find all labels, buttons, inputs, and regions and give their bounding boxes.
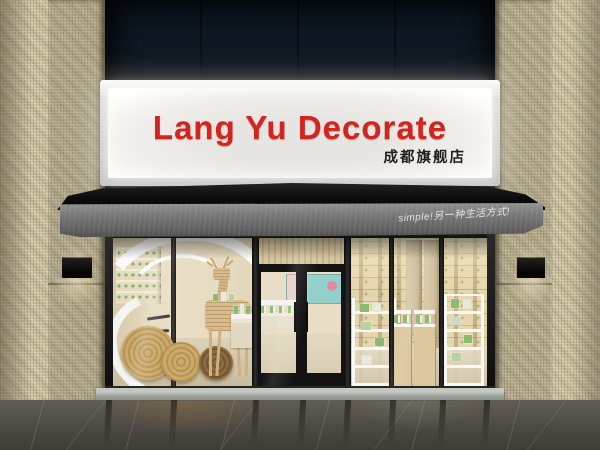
floor-reflection-warm xyxy=(108,401,263,437)
floor-reflection xyxy=(438,400,446,444)
product-item xyxy=(373,303,381,312)
product-item xyxy=(361,322,371,330)
floor-reflection xyxy=(343,400,351,444)
window-mullion xyxy=(389,238,394,386)
door-handle xyxy=(306,302,308,332)
product-item xyxy=(240,304,244,314)
storefront-glazing xyxy=(105,230,495,392)
floor-reflection xyxy=(169,400,177,444)
floor-reflection xyxy=(482,400,490,444)
product-item xyxy=(464,335,472,343)
storefront-frame-left xyxy=(105,230,113,392)
wall-lamp-icon xyxy=(62,257,92,278)
rattan-disc xyxy=(161,342,201,382)
tile-wall-left-outer xyxy=(0,0,48,404)
floor-reflection xyxy=(251,400,259,444)
door-handle xyxy=(294,302,296,332)
wall-lamp-icon xyxy=(517,257,545,278)
floor-reflection xyxy=(104,400,112,444)
display-rack xyxy=(444,294,484,386)
product-item xyxy=(360,304,369,312)
marble-floor xyxy=(0,400,600,450)
product-item xyxy=(234,306,238,314)
window-mullion xyxy=(439,238,444,386)
door-center-post xyxy=(297,268,304,386)
product-item xyxy=(375,338,384,346)
product-item xyxy=(463,300,471,308)
store-branch-label: 成都旗舰店 xyxy=(384,146,467,167)
floor-reflection xyxy=(388,400,396,444)
storefront-photo: Lang Yu Decorate 成都旗舰店 xyxy=(0,0,600,450)
display-table xyxy=(392,310,412,386)
window-mullion xyxy=(344,238,351,386)
display-table xyxy=(414,310,436,386)
product-item xyxy=(213,294,218,301)
window-left-interior xyxy=(113,238,255,386)
deer-leg xyxy=(215,328,221,376)
product-item xyxy=(451,299,459,308)
signboard-lightbox: Lang Yu Decorate 成都旗舰店 xyxy=(108,88,492,178)
floor-reflection-green xyxy=(348,401,483,431)
store-name: Lang Yu Decorate xyxy=(153,109,447,147)
product-item xyxy=(452,353,461,361)
product-item xyxy=(452,317,461,325)
entrance-section xyxy=(252,238,349,386)
tile-wall-right-outer xyxy=(552,0,600,404)
product-item xyxy=(246,306,250,314)
door-leaf-right xyxy=(303,268,345,386)
product-item xyxy=(221,292,226,301)
window-right-interior xyxy=(344,238,487,386)
top-recess-panel xyxy=(105,0,495,86)
signboard: Lang Yu Decorate 成都旗舰店 xyxy=(100,80,500,186)
deer-leg xyxy=(209,328,212,376)
window-mullion xyxy=(252,238,259,386)
product-item xyxy=(229,294,234,301)
storefront-frame-right xyxy=(487,230,495,392)
floor-reflection xyxy=(298,400,306,444)
product-item xyxy=(362,356,371,364)
